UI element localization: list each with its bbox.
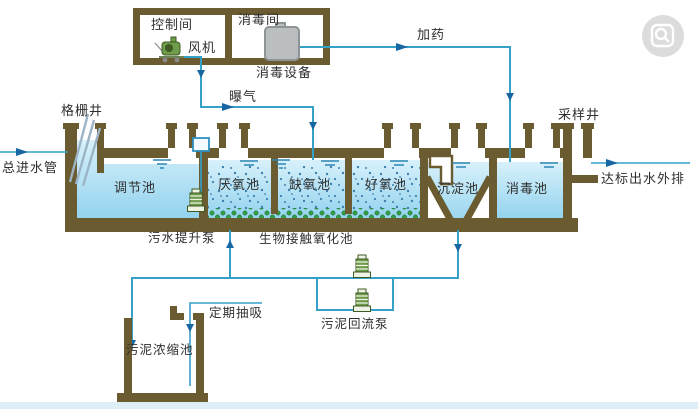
lift-discharge-box bbox=[193, 138, 209, 151]
label-fan: 风机 bbox=[188, 42, 216, 56]
bottom-strip bbox=[0, 402, 698, 409]
label-aeration: 曝气 bbox=[229, 91, 257, 105]
label-disinfection-tank: 消毒池 bbox=[506, 183, 548, 197]
label-disinfection-room: 消毒间 bbox=[238, 14, 280, 28]
bio-media-strip bbox=[208, 208, 420, 218]
label-regulation-tank: 调节池 bbox=[114, 182, 156, 196]
diagram-canvas bbox=[0, 0, 698, 409]
zoom-badge-icon[interactable] bbox=[642, 15, 684, 57]
label-aerobic-tank: 好氧池 bbox=[365, 179, 407, 193]
sludge-return-pump-icon bbox=[354, 255, 371, 278]
label-dosing: 加药 bbox=[417, 29, 445, 43]
sludge-standby-pump-icon bbox=[354, 289, 371, 312]
label-anaerobic-tank: 厌氧池 bbox=[218, 179, 260, 193]
label-grid-well: 格栅井 bbox=[61, 105, 103, 119]
label-outlet: 达标出水外排 bbox=[601, 173, 685, 187]
label-bio-contact-tank: 生物接触氧化池 bbox=[259, 232, 354, 246]
label-sludge-thickening-tank: 污泥浓缩池 bbox=[126, 343, 194, 357]
label-disinfection-equipment: 消毒设备 bbox=[256, 67, 312, 81]
label-sampling-well: 采样井 bbox=[558, 109, 600, 123]
pump-bypass-loop bbox=[317, 278, 393, 310]
process-flow-diagram: 控制间 风机 消毒间 消毒设备 加药 曝气 格栅井 总进水管 调节池 厌氧池 缺… bbox=[0, 0, 698, 409]
label-anoxic-tank: 缺氧池 bbox=[289, 179, 331, 193]
sludge-main-pipe bbox=[132, 230, 458, 340]
label-sedimentation-tank: 沉淀池 bbox=[437, 183, 479, 197]
label-control-room: 控制间 bbox=[151, 19, 193, 33]
access-hatches bbox=[166, 123, 562, 148]
label-sludge-return-pump: 污泥回流泵 bbox=[321, 317, 389, 331]
label-sewage-lift-pump: 污水提升泵 bbox=[148, 231, 216, 245]
label-periodic-suction: 定期抽吸 bbox=[209, 306, 263, 320]
disinfection-equipment-icon bbox=[265, 23, 299, 60]
label-main-inlet: 总进水管 bbox=[2, 162, 58, 176]
